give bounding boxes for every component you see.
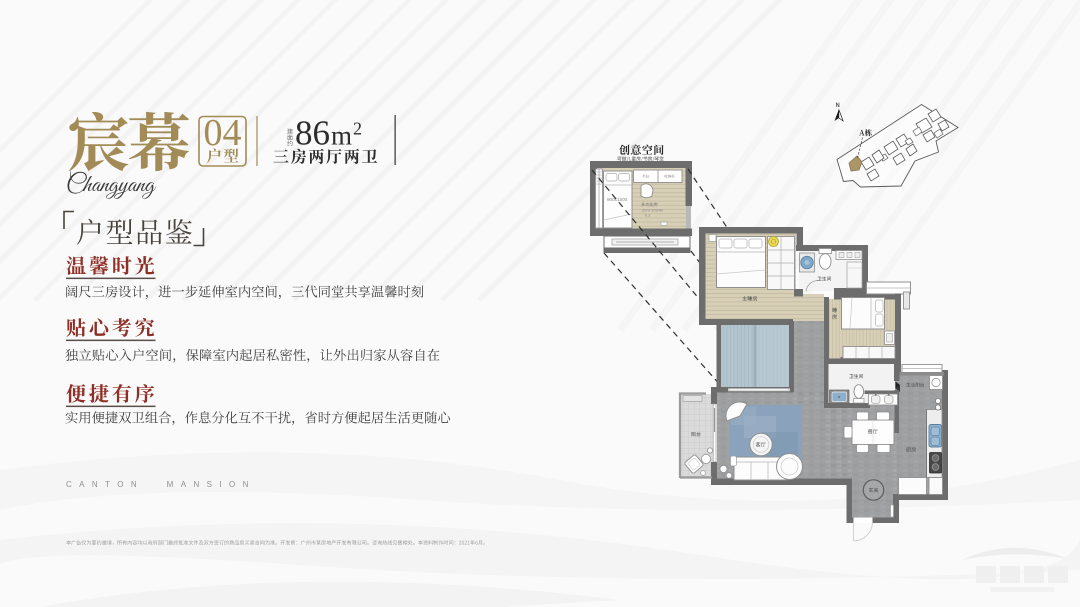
- svg-text:900x1500: 900x1500: [607, 197, 628, 202]
- svg-text:04: 04: [204, 112, 242, 154]
- svg-text:6.3: 6.3: [645, 214, 650, 218]
- svg-text:CANTON MANSION: CANTON MANSION: [66, 480, 256, 489]
- svg-text:3070-3030M: 3070-3030M: [642, 209, 663, 213]
